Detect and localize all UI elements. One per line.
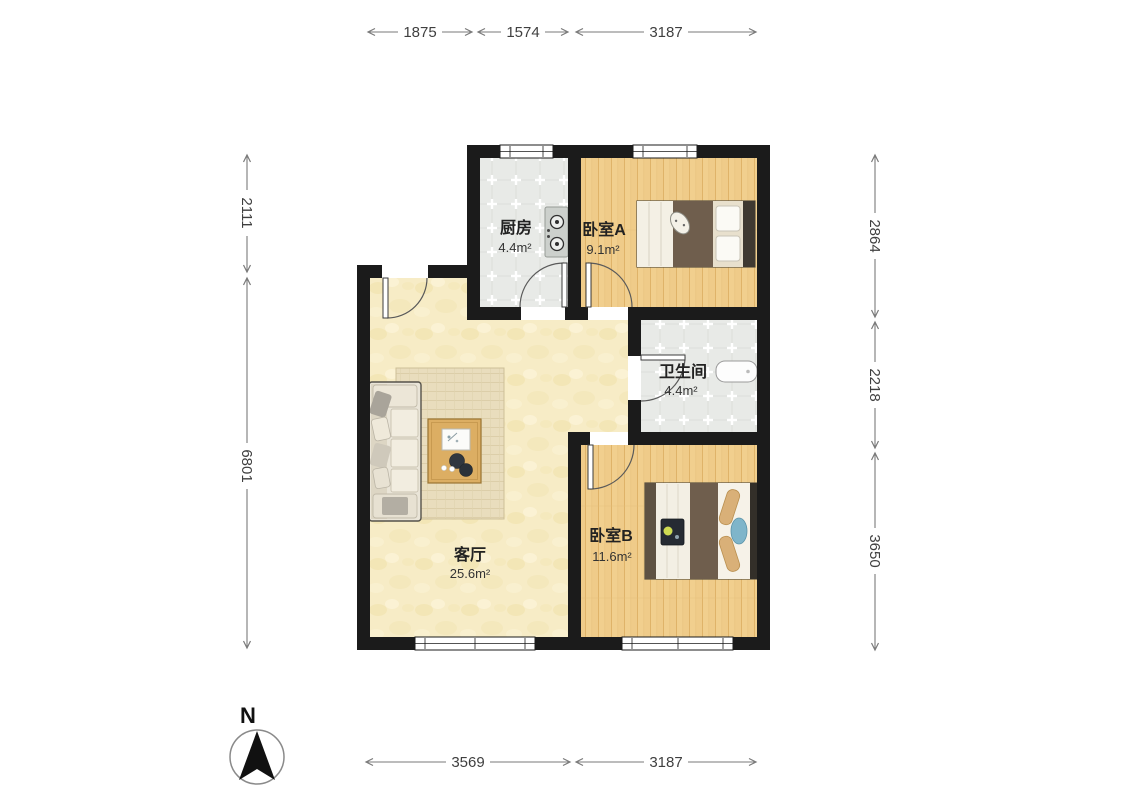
round-pillow [731,518,747,544]
dimension-left: 2111 6801 [238,155,255,648]
kitchen-area: 4.4m² [498,240,532,255]
dim-top-1: 1875 [403,24,436,41]
kitchen-window [500,145,553,158]
bed-a [637,201,755,267]
pillow [716,206,740,231]
bed-b [645,483,757,579]
bedroom-b-label: 卧室B [589,526,633,545]
kitchen-label: 厨房 [500,218,532,237]
dim-right-2: 2218 [866,368,883,401]
dim-right-3: 3650 [866,534,883,567]
dimension-top: 1875 1574 3187 [368,24,756,41]
bathroom-label: 卫生间 [659,362,707,381]
dim-left-1: 2111 [238,197,255,228]
pillow [716,236,740,261]
bathroom-area: 4.4m² [664,383,698,398]
compass: N [230,703,284,784]
living-room-window [415,637,535,650]
dim-top-2: 1574 [506,24,539,41]
table-tray [442,429,470,450]
bedroom-a-window [633,145,697,158]
sofa [369,382,421,521]
living-room-label: 客厅 [454,545,486,564]
coffee-table [428,419,481,483]
living-room-furniture [369,368,504,521]
bedroom-a-label: 卧室A [582,220,626,239]
floorplan-viewer: 厨房 4.4m² 卧室A 9.1m² 卫生间 4.4m² 客厅 25.6m² 卧… [0,0,1125,800]
dim-left-2: 6801 [238,449,255,482]
bedroom-b-area: 11.6m² [592,549,632,564]
bedroom-b-window [622,637,733,650]
dim-top-3: 3187 [649,24,682,41]
bathroom-sink [716,361,757,382]
bedroom-a-area: 9.1m² [586,242,620,257]
headboard [743,201,755,267]
living-room-area: 25.6m² [450,566,491,581]
dim-bottom-2: 3187 [649,754,682,771]
dim-bottom-1: 3569 [451,754,484,771]
floorplan-canvas: 厨房 4.4m² 卧室A 9.1m² 卫生间 4.4m² 客厅 25.6m² 卧… [0,0,1125,800]
dim-right-1: 2864 [866,219,883,252]
compass-north-label: N [240,703,256,728]
dimension-right: 2864 2218 3650 [866,155,883,650]
dimension-bottom: 3569 3187 [366,754,756,771]
headboard [750,483,757,579]
stove [545,207,568,257]
